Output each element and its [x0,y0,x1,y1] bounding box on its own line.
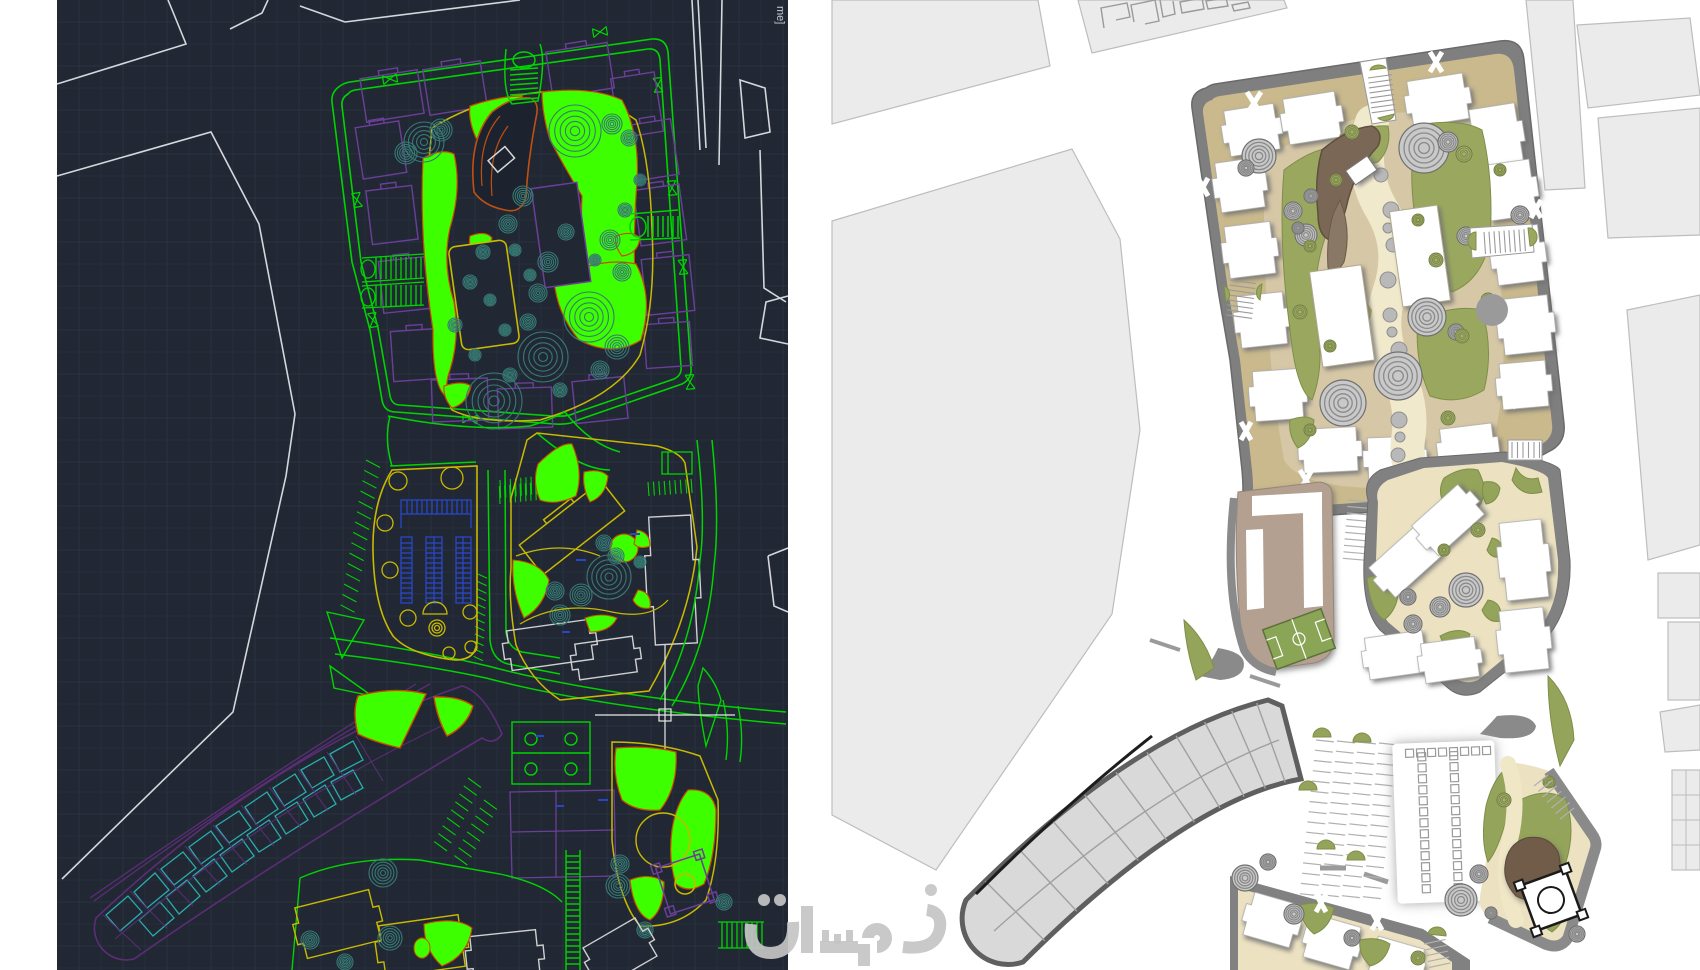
svg-text:me]: me] [774,6,786,24]
